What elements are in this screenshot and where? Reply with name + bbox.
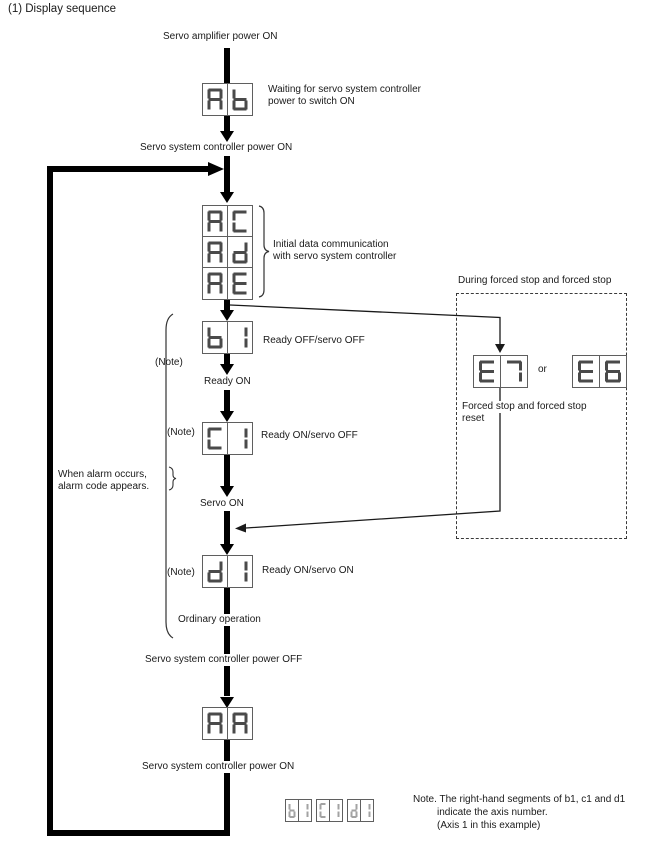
flowchart-lines [0,0,656,849]
display-b1 [202,321,253,354]
display-note-b1 [285,799,312,822]
note-line3: (Axis 1 in this example) [437,820,540,832]
note-marker-c1: (Note) [167,427,195,439]
label-controller-power-off: Servo system controller power OFF [143,654,304,666]
seg-digit [203,322,228,353]
seg-digit [474,356,501,387]
seg-digit [228,556,252,587]
seg-digit [600,356,626,387]
display-ac [202,205,253,238]
display-e7 [473,355,528,388]
label-ordinary-operation: Ordinary operation [176,614,263,626]
seg-digit [203,237,228,268]
note-marker-b1: (Note) [155,357,183,369]
seg-digit [203,708,228,739]
display-ae [202,267,253,300]
initial-data-caption: Initial data communication with servo sy… [273,239,396,262]
seg-digit [330,800,342,821]
seg-digit [203,556,228,587]
label-ready-on: Ready ON [202,376,253,388]
display-aa [202,707,253,740]
forced-stop-caption-line1: Forced stop and forced stop [460,401,589,413]
seg-digit [228,237,252,268]
seg-digit [573,356,600,387]
or-label: or [538,364,547,376]
seg-digit [361,800,373,821]
seg-digit [203,423,228,454]
note-line2: indicate the axis number. [437,807,548,819]
label-controller-power-on-top: Servo system controller power ON [138,142,294,154]
seg-digit [299,800,311,821]
display-e6 [572,355,627,388]
seg-digit [317,800,330,821]
label-servo-on: Servo ON [198,498,246,510]
seg-digit [203,206,228,237]
initial-data-caption-line2: with servo system controller [273,251,396,263]
seg-digit [501,356,527,387]
display-c1 [202,422,253,455]
display-ad [202,236,253,269]
seg-digit [228,206,252,237]
display-d1 [202,555,253,588]
waiting-caption-line2: power to switch ON [268,96,421,108]
alarm-caption-line1: When alarm occurs, [58,469,149,481]
manual-page: (1) Display sequence Servo amplifier pow… [0,0,656,849]
forced-stop-caption-line2: reset [460,413,486,425]
seg-digit [228,84,252,115]
label-servo-amplifier-power-on: Servo amplifier power ON [163,31,277,43]
note-line1: Note. The right-hand segments of b1, c1 … [413,794,625,806]
alarm-caption: When alarm occurs, alarm code appears. [58,469,149,492]
display-note-d1 [347,799,374,822]
seg-digit [228,268,252,299]
note-marker-d1: (Note) [167,567,195,579]
page-title: (1) Display sequence [8,4,116,16]
forced-stop-title: During forced stop and forced stop [458,275,611,287]
label-ready-off-servo-off: Ready OFF/servo OFF [263,335,365,347]
label-ready-on-servo-on: Ready ON/servo ON [262,565,354,577]
seg-digit [348,800,361,821]
seg-digit [203,84,228,115]
label-ready-on-servo-off: Ready ON/servo OFF [261,430,358,442]
seg-digit [228,322,252,353]
waiting-caption-line1: Waiting for servo system controller [268,84,421,96]
alarm-caption-line2: alarm code appears. [58,481,149,493]
label-controller-power-on-bottom: Servo system controller power ON [140,761,296,773]
initial-data-caption-line1: Initial data communication [273,239,396,251]
display-note-c1 [316,799,343,822]
seg-digit [286,800,299,821]
seg-digit [203,268,228,299]
waiting-caption: Waiting for servo system controller powe… [268,84,421,107]
display-ab [202,83,253,116]
seg-digit [228,423,252,454]
seg-digit [228,708,252,739]
